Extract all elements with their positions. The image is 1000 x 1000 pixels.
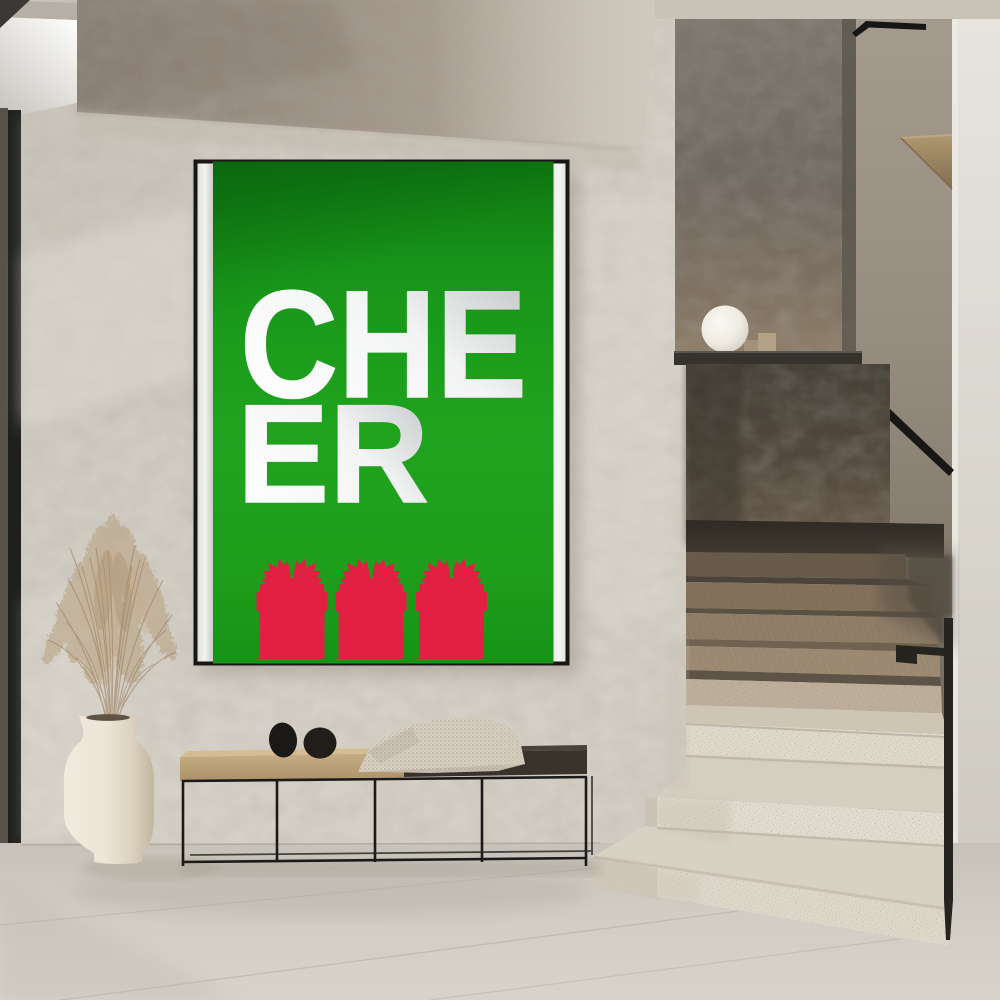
- svg-text:ER: ER: [237, 375, 429, 532]
